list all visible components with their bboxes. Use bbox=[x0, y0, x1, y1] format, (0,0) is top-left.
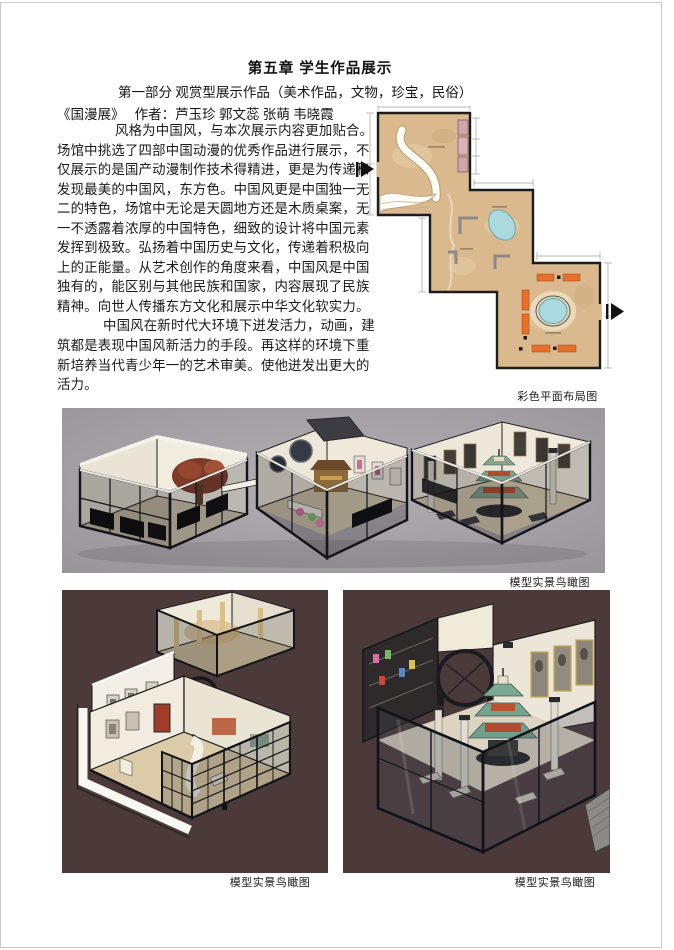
model-wide-caption: 模型实景鸟瞰图 bbox=[62, 574, 590, 590]
model-right-render bbox=[343, 590, 610, 873]
entrance-arrow-icon bbox=[356, 161, 374, 177]
entrance-door-gap bbox=[376, 162, 379, 177]
model-left-caption: 模型实景鸟瞰图 bbox=[160, 874, 380, 890]
body-line: 场馆中挑选了四部中国动漫的优秀作品进行展示，不 bbox=[57, 141, 377, 161]
chapter-title: 第五章 学生作品展示 bbox=[0, 57, 640, 78]
body-line: 独有的，能区别与其他民族和国家，内容展现了民族 bbox=[57, 277, 377, 297]
body-line: 中国风在新时代大环境下迸发活力，动画，建 bbox=[57, 316, 377, 336]
body-line: 筑都是表现中国风新活力的手段。再这样的环境下重 bbox=[57, 336, 377, 356]
body-line: 上的正能量。从艺术创作的角度来看，中国风是中国 bbox=[57, 258, 377, 278]
model-left-figure bbox=[62, 590, 328, 873]
body-line: 发挥到极致。弘扬着中国历史与文化，传递着积极向 bbox=[57, 238, 377, 258]
floor-plan-caption: 彩色平面布局图 bbox=[440, 388, 674, 404]
exit-door-gap bbox=[598, 304, 602, 320]
body-line: 一不透露着浓厚的中国特色，细致的设计将中国元素 bbox=[57, 219, 377, 239]
work-title-line: 《国漫展》 作者：芦玉珍 郭文蕊 张萌 韦晓霞 bbox=[57, 103, 334, 123]
body-line: 仅展示的是国产动漫制作技术得精进，更是为传递和 bbox=[57, 160, 377, 180]
model-right-caption: 模型实景鸟瞰图 bbox=[450, 874, 660, 890]
document-page: 第五章 学生作品展示 第一部分 观赏型展示作品（美术作品，文物，珍宝，民俗） 《… bbox=[0, 0, 674, 950]
body-line: 二的特色，场馆中无论是天圆地方还是木质桌案，无 bbox=[57, 199, 377, 219]
body-line: 活力。 bbox=[57, 375, 377, 395]
body-paragraph: 风格为中国风，与本次展示内容更加贴合。 场馆中挑选了四部中国动漫的优秀作品进行展… bbox=[57, 121, 377, 395]
floor-plan-drawing bbox=[352, 106, 672, 388]
model-left-render bbox=[62, 590, 328, 873]
section-subtitle: 第一部分 观赏型展示作品（美术作品，文物，珍宝，民俗） bbox=[118, 81, 472, 101]
body-line: 新培养当代青少年一的艺术审美。使他迸发出更大的 bbox=[57, 356, 377, 376]
body-line: 发现最美的中国风，东方色。中国风更是中国独一无 bbox=[57, 180, 377, 200]
model-wide-figure bbox=[62, 408, 605, 573]
body-line: 精神。向世人传播东方文化和展示中华文化软实力。 bbox=[57, 297, 377, 317]
exit-arrow-icon bbox=[606, 303, 624, 320]
model-right-figure bbox=[343, 590, 610, 873]
pool bbox=[539, 299, 567, 324]
model-wide-render bbox=[62, 408, 605, 573]
display-cases bbox=[458, 120, 468, 172]
floor-plan-figure bbox=[352, 106, 672, 388]
body-line: 风格为中国风，与本次展示内容更加贴合。 bbox=[57, 121, 377, 141]
